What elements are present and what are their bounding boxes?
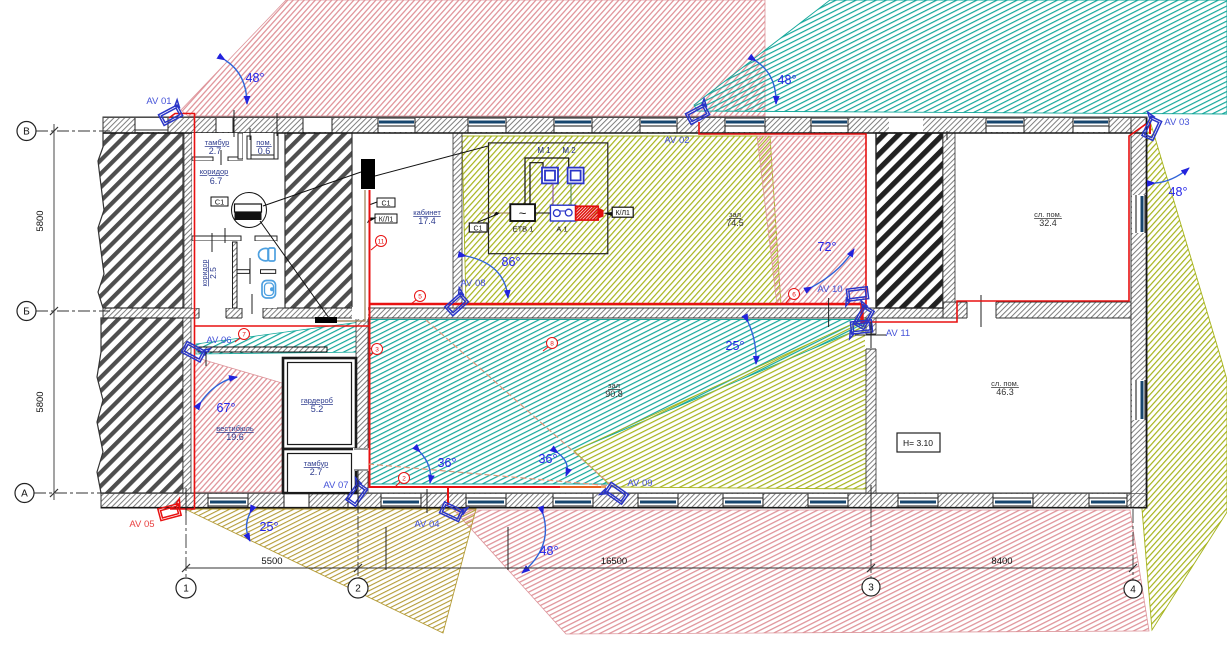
svg-text:5800: 5800 [35,391,46,412]
svg-text:AV 06: AV 06 [206,335,231,346]
svg-text:~: ~ [519,206,527,221]
svg-text:48°: 48° [778,73,797,87]
svg-text:3: 3 [375,347,379,354]
svg-text:5: 5 [418,294,422,301]
svg-text:К/Л1: К/Л1 [379,217,394,224]
svg-text:0.6: 0.6 [258,146,271,156]
svg-text:С1: С1 [474,226,483,233]
svg-text:17.4: 17.4 [418,216,436,226]
svg-text:В: В [23,127,30,138]
svg-text:48°: 48° [1169,185,1188,199]
svg-text:С1: С1 [215,198,225,207]
svg-text:H= 3.10: H= 3.10 [903,438,933,448]
svg-text:67°: 67° [217,401,236,415]
svg-text:AV 02: AV 02 [664,135,689,146]
svg-text:AV 05: AV 05 [129,519,154,530]
svg-text:AV 07: AV 07 [323,480,348,491]
svg-text:74.5: 74.5 [726,218,744,228]
svg-text:32.4: 32.4 [1039,218,1057,228]
svg-text:AV 08: AV 08 [460,278,485,289]
svg-text:коридор: коридор [200,167,229,176]
svg-text:2.5: 2.5 [208,267,218,279]
svg-text:5500: 5500 [261,556,282,567]
svg-text:AV 03: AV 03 [1164,117,1189,128]
svg-text:А 1: А 1 [556,225,567,234]
svg-text:25°: 25° [726,339,745,353]
svg-text:46.3: 46.3 [996,387,1014,397]
svg-text:5.2: 5.2 [311,404,324,414]
svg-text:Б: Б [23,307,30,318]
svg-text:86°: 86° [502,255,521,269]
svg-text:25°: 25° [260,520,279,534]
svg-text:1: 1 [183,584,189,595]
svg-text:AV 09: AV 09 [627,478,652,489]
svg-text:4: 4 [1130,585,1136,596]
svg-text:8: 8 [550,341,554,348]
svg-text:AV 01: AV 01 [146,96,171,107]
svg-text:M 1: M 1 [537,146,551,155]
svg-text:48°: 48° [540,544,559,558]
svg-text:2: 2 [355,584,361,595]
svg-text:8400: 8400 [991,556,1012,567]
svg-text:11: 11 [378,239,385,246]
svg-text:7: 7 [242,332,246,339]
svg-text:3: 3 [868,583,874,594]
svg-text:48°: 48° [246,71,265,85]
svg-text:2.7: 2.7 [310,467,323,477]
svg-text:К/Л1: К/Л1 [615,210,630,217]
svg-text:2: 2 [402,476,406,483]
svg-text:6: 6 [792,292,796,299]
svg-text:36°: 36° [539,452,558,466]
svg-text:72°: 72° [818,240,837,254]
svg-text:А: А [21,489,28,500]
svg-text:AV 11: AV 11 [886,328,910,339]
svg-text:19.6: 19.6 [226,432,244,442]
svg-text:M 2: M 2 [562,146,576,155]
svg-text:AV 10: AV 10 [817,284,842,295]
svg-text:90.8: 90.8 [605,389,623,399]
svg-text:6.7: 6.7 [210,176,223,186]
svg-text:36°: 36° [438,456,457,470]
svg-text:ЕТВ 1: ЕТВ 1 [513,225,534,234]
svg-text:2.7: 2.7 [209,146,222,156]
svg-text:С1: С1 [382,201,391,208]
svg-text:AV 04: AV 04 [414,519,439,530]
svg-text:5800: 5800 [35,210,46,231]
svg-text:16500: 16500 [601,556,627,567]
